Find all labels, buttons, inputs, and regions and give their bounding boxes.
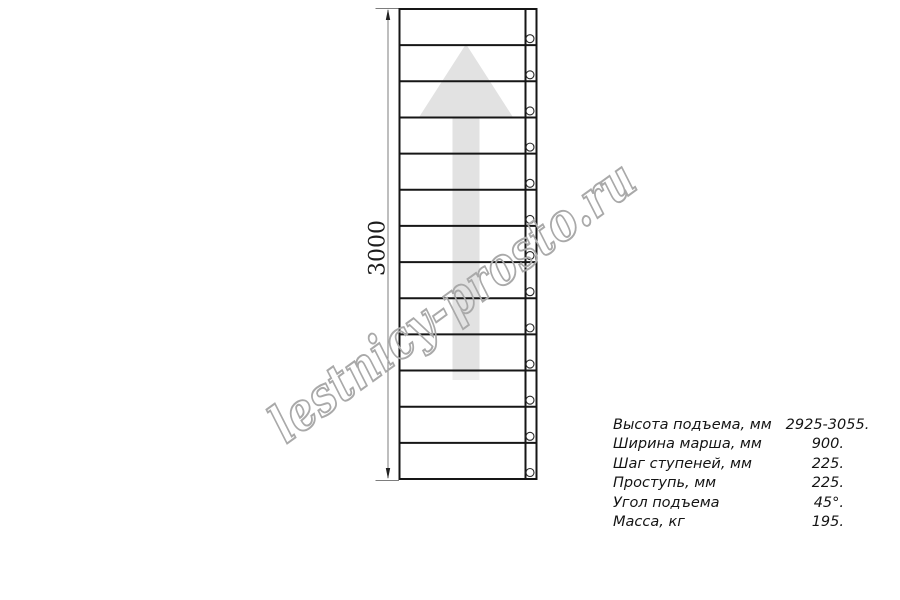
technical-drawing-page: 3000 lestnicy-prosto.ru Высота подъема, … [0,0,900,600]
mounting-hole-icon [526,107,534,115]
spec-row-tread: Проступь, мм 225. [613,474,844,493]
mounting-hole-icon [526,324,534,332]
spec-label: Угол подъема [613,494,720,513]
spec-label: Проступь, мм [613,474,716,493]
spec-value: 225. [798,455,844,474]
spec-value: 195. [798,513,844,532]
spec-label: Высота подъема, мм [613,416,772,435]
spec-value: 225. [798,474,844,493]
spec-table: Высота подъема, мм 2925-3055. Ширина мар… [613,416,844,532]
spec-row-width: Ширина марша, мм 900. [613,435,844,454]
mounting-hole-icon [526,396,534,404]
dimension-label: 3000 [366,220,391,276]
mounting-hole-icon [526,143,534,151]
dimension-arrowhead-top [386,9,390,20]
mounting-hole-icon [526,252,534,260]
spec-label: Шаг ступеней, мм [613,455,752,474]
spec-label: Масса, кг [613,513,685,532]
spec-row-height: Высота подъема, мм 2925-3055. [613,416,844,435]
mounting-hole-icon [526,215,534,223]
dimension-arrowhead-bottom [386,468,390,479]
spec-row-angle: Угол подъема 45°. [613,494,844,513]
mounting-hole-icon [526,179,534,187]
mounting-hole-icon [526,469,534,477]
spec-row-mass: Масса, кг 195. [613,513,844,532]
spec-label: Ширина марша, мм [613,435,762,454]
mounting-holes [526,35,534,477]
spec-row-step-pitch: Шаг ступеней, мм 225. [613,455,844,474]
mounting-hole-icon [526,432,534,440]
mounting-hole-icon [526,288,534,296]
spec-value: 2925-3055. [772,416,870,435]
mounting-hole-icon [526,360,534,368]
mounting-hole-icon [526,35,534,43]
spec-value: 45°. [800,494,844,513]
spec-value: 900. [798,435,844,454]
direction-arrow [419,44,514,380]
mounting-hole-icon [526,71,534,79]
